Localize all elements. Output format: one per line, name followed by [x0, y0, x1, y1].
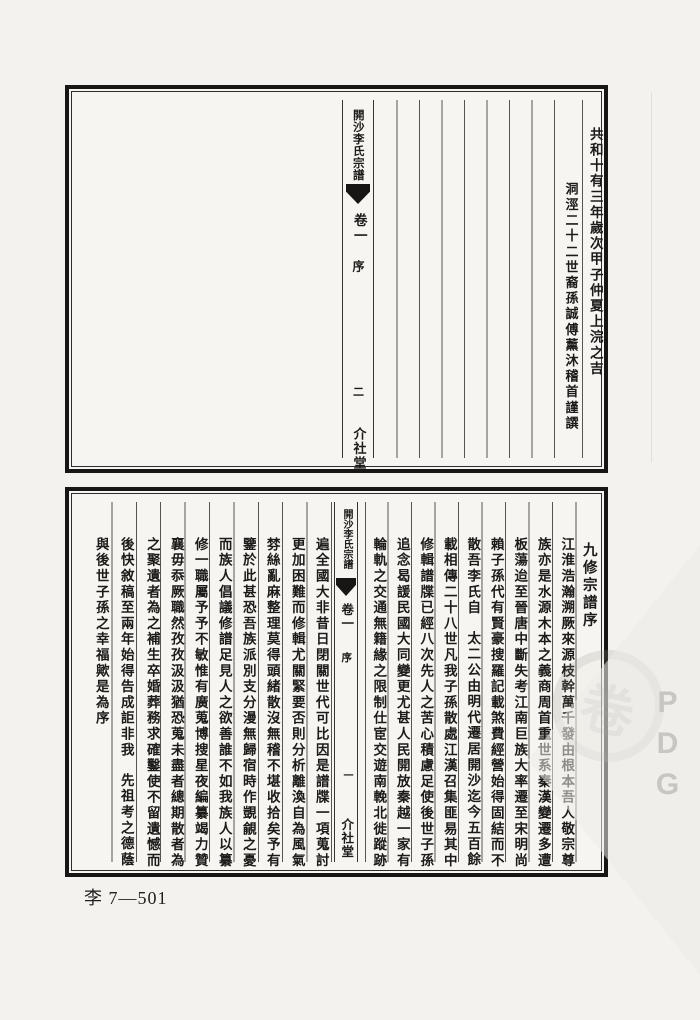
column-text: 棼絲亂麻整理莫得頭緒散沒無稽不堪收拾矣予有 — [264, 537, 278, 869]
top-spine-page-number-wrap: 二 — [343, 386, 373, 397]
text-column: 與後世子孫之幸福歟是為序 — [89, 537, 112, 727]
text-column: 載相傳二十八世凡我子孫散處江漢召集匪易其中 — [437, 537, 460, 869]
section-label: 序 — [341, 652, 352, 663]
column-text: 鑒於此甚恐吾族派別支分漫無歸宿時作覬覦之憂 — [240, 537, 254, 869]
text-column: 共和十有三年歲次甲子仲夏上浣之吉 — [583, 127, 606, 377]
text-column: 後快敘稿至兩年始得告成詎非我先祖考之德蔭 — [114, 537, 137, 868]
column-text: 修輯譜牒已經八次先人之苦心積慮足使後世子孫 — [418, 537, 432, 869]
bottom-spine-page-number-wrap: 一 — [335, 770, 357, 780]
preface-title: 九修宗譜序 — [581, 542, 596, 630]
fishtail-icon — [346, 184, 370, 204]
text-column: 更加困難而修輯尤關緊要否則分析離渙自為風氣 — [285, 537, 308, 869]
text-column: 襄毋忝厥職然孜孜汲汲猶恐蒐未盡者總期散者為 — [164, 537, 187, 869]
column-text: 散吾李氏自太二公由明代遷居開沙迄今五百餘 — [465, 537, 479, 868]
text-column: 散吾李氏自太二公由明代遷居開沙迄今五百餘 — [460, 537, 483, 868]
page-number: 一 — [341, 770, 351, 780]
text-column: 板蕩迨至晉唐中斷失考江南巨族大率遷至宋明尚 — [507, 537, 530, 869]
top-spine-column: 開沙李氏宗譜 卷一 序 二 介社堂 — [342, 100, 374, 458]
text-column: 鑒於此甚恐吾族派別支分漫無歸宿時作覬覦之憂 — [236, 537, 259, 869]
column-text: 修一職屬予予不敏惟有廣蒐博搜星夜編纂竭力贊 — [192, 537, 206, 869]
column-text: 而族人倡議修譜足見人之欲善誰不如我族人以纂 — [216, 537, 230, 869]
column-text: 追念曷諼民國大同變更尤甚人民開放秦越一家有 — [394, 537, 408, 869]
text-column: 而族人倡議修譜足見人之欲善誰不如我族人以纂 — [212, 537, 235, 869]
column-text: 賴子孫代有賢豪搜羅記載煞費經營始得固結而不 — [488, 537, 502, 869]
book-title: 開沙李氏宗譜 — [352, 109, 364, 181]
column-text: 後快敘稿至兩年始得告成詎非我先祖考之德蔭 — [118, 537, 132, 868]
scanned-page: 開沙李氏宗譜 卷一 序 二 介社堂 共和十有三年歲次甲子仲夏上浣之吉洞涇二十二世… — [0, 0, 700, 1020]
page-edge-shadow — [651, 92, 652, 462]
catalog-label: 李 7—501 — [84, 884, 168, 910]
top-spine-hall-wrap: 介社堂 — [343, 427, 373, 471]
volume-label: 卷一 — [351, 213, 365, 244]
bottom-spine-title-wrap: 開沙李氏宗譜 — [335, 509, 357, 569]
column-text: 遍全國大非昔日閉關世代可比因是譜牒一項蒐討 — [313, 537, 327, 869]
column-text: 與後世子孫之幸福歟是為序 — [93, 537, 107, 727]
page-number: 二 — [353, 386, 364, 397]
column-text: 更加困難而修輯尤關緊要否則分析離渙自為風氣 — [289, 537, 303, 869]
pdg-watermark: PDG — [650, 686, 684, 809]
text-column: 追念曷諼民國大同變更尤甚人民開放秦越一家有 — [390, 537, 413, 869]
top-spine-section-wrap: 序 — [343, 260, 373, 272]
bottom-page-frame: 開沙李氏宗譜 卷一 序 一 介社堂 九修宗譜序 江淮浩瀚溯厥來源枝幹萬千發由根本… — [65, 487, 608, 877]
hall-name: 介社堂 — [340, 818, 353, 859]
text-column: 輪軌之交通無籍緣之限制仕宦交遊南輓北徙蹤跡 — [366, 537, 389, 869]
text-column: 修一職屬予予不敏惟有廣蒐博搜星夜編纂竭力贊 — [188, 537, 211, 869]
text-column: 江淮浩瀚溯厥來源枝幹萬千發由根本吾人敬宗尊 — [554, 537, 577, 869]
text-column: 修輯譜牒已經八次先人之苦心積慮足使後世子孫 — [413, 537, 436, 869]
column-text: 之聚遺者為之補生卒婚葬務求確鑿使不留遺憾而 — [144, 537, 158, 869]
column-text: 洞涇二十二世裔孫誠傅薰沐稽首謹譔 — [564, 182, 577, 432]
top-page-frame: 開沙李氏宗譜 卷一 序 二 介社堂 共和十有三年歲次甲子仲夏上浣之吉洞涇二十二世… — [65, 85, 608, 473]
text-column: 族亦是水源木本之義商周首重世系秦漢變遷多遭 — [531, 537, 554, 869]
column-text: 載相傳二十八世凡我子孫散處江漢召集匪易其中 — [441, 537, 455, 869]
fishtail-icon — [336, 578, 356, 596]
text-column: 之聚遺者為之補生卒婚葬務求確鑿使不留遺憾而 — [140, 537, 163, 869]
preface-title-column: 九修宗譜序 — [577, 542, 600, 630]
column-text: 共和十有三年歲次甲子仲夏上浣之吉 — [587, 127, 601, 377]
bottom-spine-volume-wrap: 卷一 — [335, 603, 357, 631]
column-text: 族亦是水源木本之義商周首重世系秦漢變遷多遭 — [535, 537, 549, 869]
bottom-spine-section-wrap: 序 — [335, 652, 357, 663]
text-column: 棼絲亂麻整理莫得頭緒散沒無稽不堪收拾矣予有 — [260, 537, 283, 869]
column-text: 江淮浩瀚溯厥來源枝幹萬千發由根本吾人敬宗尊 — [559, 537, 573, 869]
text-column: 賴子孫代有賢豪搜羅記載煞費經營始得固結而不 — [484, 537, 507, 869]
text-column: 遍全國大非昔日閉關世代可比因是譜牒一項蒐討 — [309, 537, 332, 869]
column-text: 輪軌之交通無籍緣之限制仕宦交遊南輓北徙蹤跡 — [371, 537, 385, 869]
bottom-spine-column: 開沙李氏宗譜 卷一 序 一 介社堂 — [334, 502, 358, 862]
top-ruled-columns — [375, 100, 555, 458]
volume-label: 卷一 — [340, 603, 353, 631]
section-label: 序 — [352, 260, 364, 272]
book-title: 開沙李氏宗譜 — [341, 509, 351, 569]
column-text: 板蕩迨至晉唐中斷失考江南巨族大率遷至宋明尚 — [512, 537, 526, 869]
bottom-spine-hall-wrap: 介社堂 — [335, 818, 357, 859]
column-text: 襄毋忝厥職然孜孜汲汲猶恐蒐未盡者總期散者為 — [168, 537, 182, 869]
top-spine-volume-wrap: 卷一 — [343, 213, 373, 244]
text-column: 洞涇二十二世裔孫誠傅薰沐稽首謹譔 — [559, 182, 582, 432]
hall-name: 介社堂 — [352, 427, 365, 471]
top-spine-title-wrap: 開沙李氏宗譜 — [343, 109, 373, 181]
